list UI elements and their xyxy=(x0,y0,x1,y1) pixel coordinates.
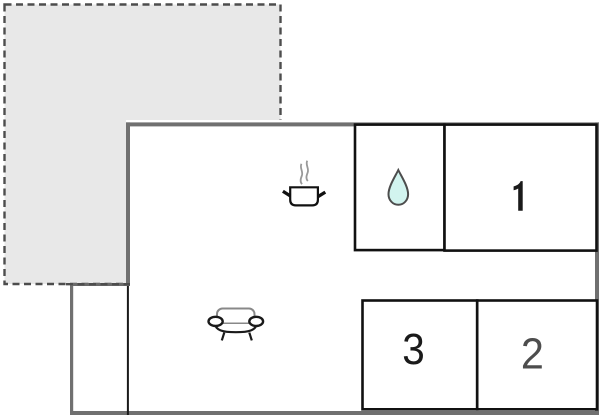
svg-text:3: 3 xyxy=(402,325,425,374)
svg-text:2: 2 xyxy=(521,330,544,379)
